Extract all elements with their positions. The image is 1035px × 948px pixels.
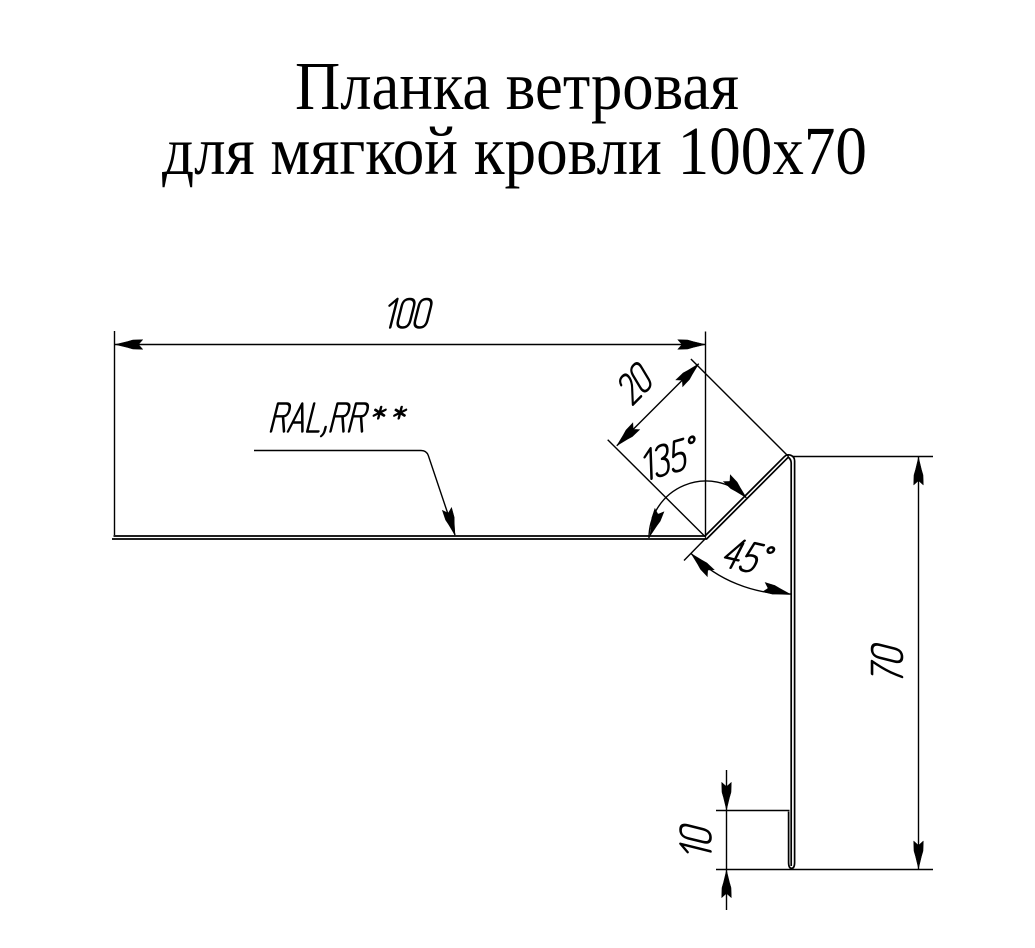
svg-text:для мягкой кровли 100х70: для мягкой кровли 100х70 bbox=[162, 113, 867, 189]
